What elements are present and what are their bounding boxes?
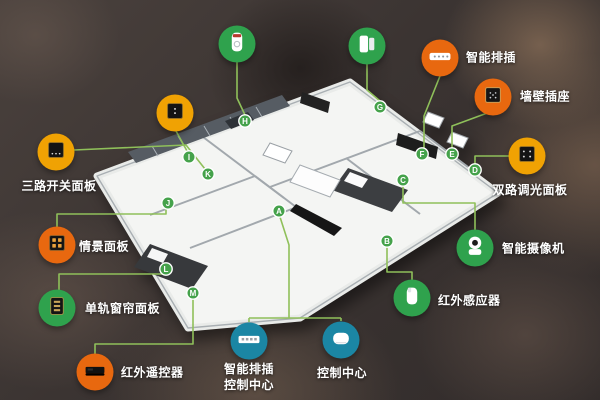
ir-remote-icon — [84, 358, 107, 386]
wall-socket-icon — [482, 83, 505, 111]
bath-fixture — [423, 112, 444, 128]
triple-switch-panel-badge — [38, 134, 75, 171]
scene-panel-label: 情景面板 — [79, 238, 129, 255]
control-center-badge — [323, 322, 360, 359]
floorplan-marker-j: J — [162, 197, 174, 209]
bath-fixture — [447, 132, 468, 148]
marker-letter: C — [400, 176, 406, 185]
gas-alarm-badge — [219, 26, 256, 63]
gas-alarm-icon — [226, 30, 249, 58]
connector-line — [475, 156, 509, 164]
marker-letter: M — [190, 289, 197, 298]
smart-power-strip-badge — [422, 40, 459, 77]
floorplan-marker-d: D — [469, 164, 481, 176]
smart-camera-icon — [464, 234, 487, 262]
wall-socket-label: 墙壁插座 — [520, 88, 570, 105]
strip-control-center-badge — [231, 323, 268, 360]
marker-letter: I — [188, 153, 190, 162]
marker-letter: K — [205, 170, 211, 179]
marker-letter: A — [276, 207, 282, 216]
power-strip-icon — [429, 44, 452, 72]
control-center-label: 控制中心 — [317, 364, 367, 381]
marker-letter: E — [449, 150, 455, 159]
marker-letter: F — [420, 150, 425, 159]
floorplan-marker-g: G — [374, 101, 386, 113]
ir-remote-badge — [77, 354, 114, 391]
door-window-sensor-icon — [356, 32, 379, 60]
dual-dimmer-panel-icon — [516, 142, 539, 170]
door-window-sensor-badge — [349, 28, 386, 65]
marker-letter: L — [164, 265, 169, 274]
floorplan-marker-i: I — [183, 151, 195, 163]
strip-hub-icon — [238, 327, 261, 355]
marker-letter: H — [242, 117, 248, 126]
marker-letter: B — [384, 237, 390, 246]
smart-camera-label: 智能摄像机 — [502, 240, 565, 257]
ir-remote-label: 红外遥控器 — [121, 364, 184, 381]
ir-sensor-icon — [401, 284, 424, 312]
connector-line — [59, 274, 166, 290]
curtain-panel-icon — [46, 294, 69, 322]
triple-switch-panel-label: 三路开关面板 — [21, 177, 96, 194]
curtain-panel-badge — [39, 290, 76, 327]
marker-letter: G — [377, 103, 383, 112]
strip-control-center-label: 智能排插控制中心 — [223, 362, 275, 393]
floorplan-marker-l: L — [160, 263, 172, 275]
floorplan-marker-c: C — [397, 174, 409, 186]
floorplan-marker-f: F — [416, 148, 428, 160]
floorplan-marker-m: M — [187, 287, 199, 299]
single-dimmer-panel-icon — [164, 99, 187, 127]
smart-home-device-map: ABCDEFGHIJKLM 燃气报警器门磁/窗磁智能排插单路调光面板墙壁插座三路… — [0, 0, 600, 400]
scene-panel-icon — [46, 231, 69, 259]
ir-sensor-label: 红外感应器 — [438, 292, 501, 309]
marker-letter: J — [166, 199, 170, 208]
floorplan-marker-h: H — [239, 115, 251, 127]
triple-switch-panel-icon — [45, 138, 68, 166]
scene-panel-badge — [39, 227, 76, 264]
wall-socket-badge — [475, 79, 512, 116]
smart-camera-badge — [457, 230, 494, 267]
dual-dimmer-panel-badge — [509, 138, 546, 175]
floorplan-marker-k: K — [202, 168, 214, 180]
smart-power-strip-label: 智能排插 — [466, 49, 516, 66]
ir-sensor-badge — [394, 280, 431, 317]
floorplan-marker-a: A — [273, 205, 285, 217]
single-dimmer-panel-badge — [157, 95, 194, 132]
marker-letter: D — [472, 166, 478, 175]
dual-dimmer-panel-label: 双路调光面板 — [492, 181, 567, 198]
control-hub-icon — [330, 326, 353, 354]
floorplan-marker-b: B — [381, 235, 393, 247]
floorplan-marker-e: E — [446, 148, 458, 160]
connector-line — [237, 62, 245, 115]
curtain-panel-label: 单轨窗帘面板 — [85, 300, 160, 317]
